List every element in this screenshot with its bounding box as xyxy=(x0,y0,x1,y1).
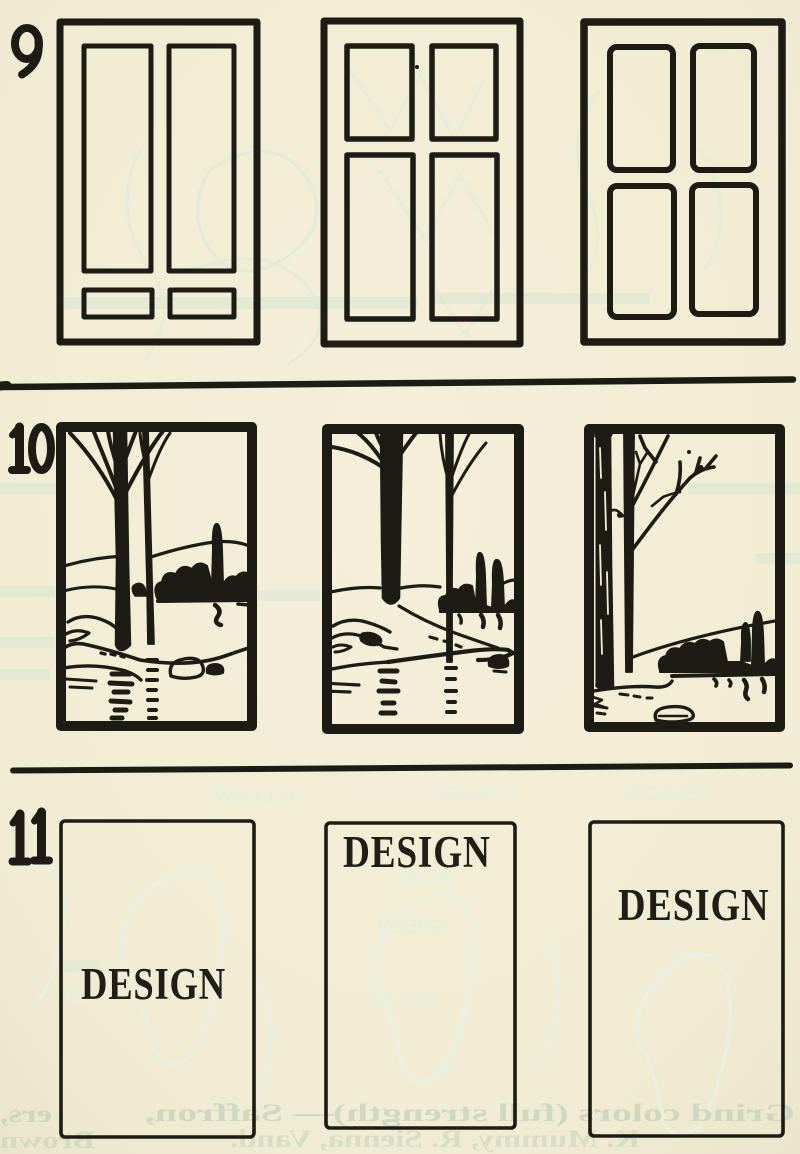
svg-text:Brown: Brown xyxy=(0,1128,95,1154)
svg-text:Grind colors (full strength)—: Grind colors (full strength)— Saffron, xyxy=(145,1100,795,1127)
svg-text:VIOLET: VIOLET xyxy=(368,990,437,1011)
svg-text:K. Mummy, R. Sienna, Vand.: K. Mummy, R. Sienna, Vand. xyxy=(230,1126,640,1153)
svg-text:ORANGE: ORANGE xyxy=(432,783,520,805)
svg-text:YELLOW: YELLOW xyxy=(214,785,300,807)
svg-text:GREEN: GREEN xyxy=(378,917,446,938)
svg-text:ers,: ers, xyxy=(0,1101,52,1128)
svg-text:DESIGN: DESIGN xyxy=(343,827,491,878)
svg-text:DESIGN: DESIGN xyxy=(81,958,226,1009)
svg-text:DESIGN: DESIGN xyxy=(618,880,769,931)
svg-text:YELLOW: YELLOW xyxy=(626,783,712,805)
